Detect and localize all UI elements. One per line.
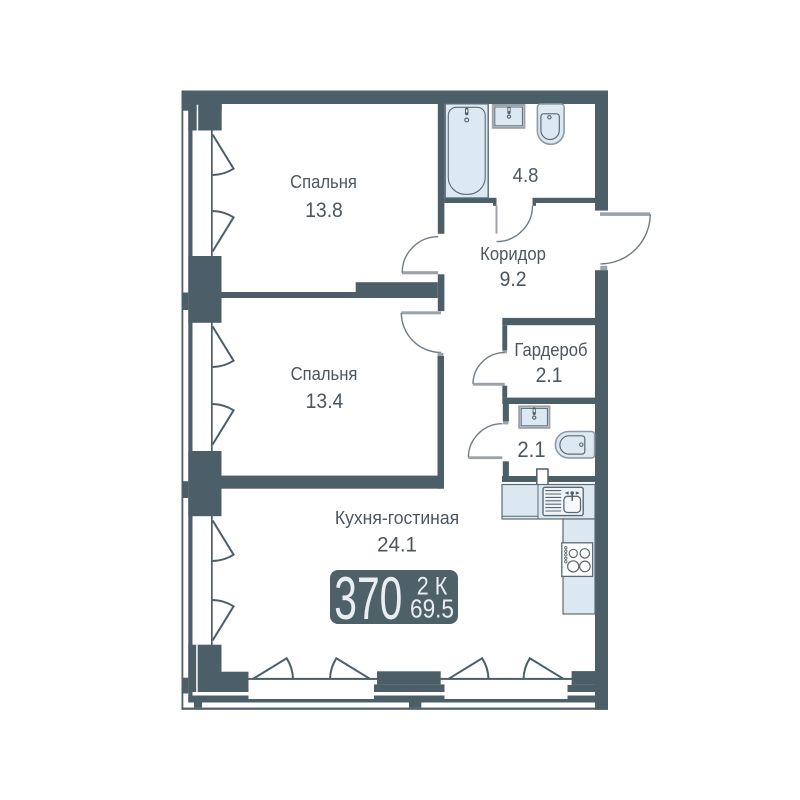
svg-text:4.8: 4.8 <box>513 164 539 187</box>
svg-text:Кухня-гостиная: Кухня-гостиная <box>335 508 459 529</box>
svg-text:Спальня: Спальня <box>291 363 358 384</box>
svg-text:9.2: 9.2 <box>500 267 527 291</box>
svg-text:2.1: 2.1 <box>536 363 563 387</box>
svg-text:Гардероб: Гардероб <box>514 339 587 360</box>
svg-text:69.5: 69.5 <box>410 595 454 624</box>
svg-text:370: 370 <box>334 565 402 632</box>
svg-text:13.4: 13.4 <box>306 389 344 413</box>
svg-text:13.8: 13.8 <box>305 198 343 222</box>
svg-text:2.1: 2.1 <box>517 437 545 462</box>
svg-text:Коридор: Коридор <box>480 243 546 264</box>
svg-text:Спальня: Спальня <box>290 171 357 192</box>
svg-text:24.1: 24.1 <box>377 533 417 557</box>
